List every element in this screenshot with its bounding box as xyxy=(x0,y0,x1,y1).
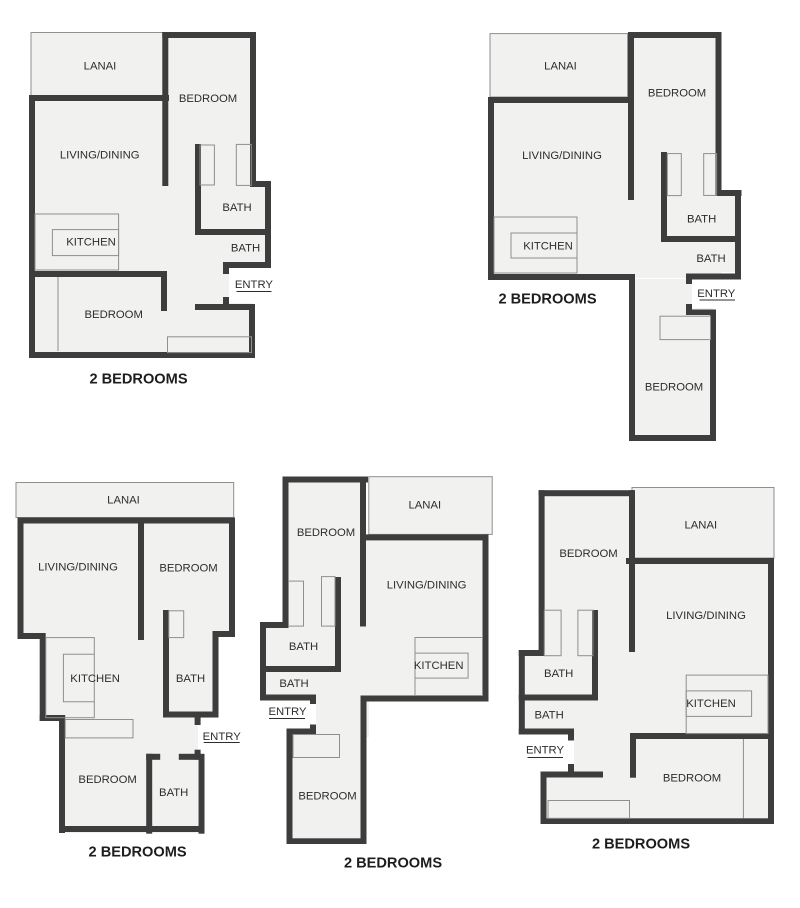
svg-text:BATH: BATH xyxy=(696,253,725,265)
svg-text:2 BEDROOMS: 2 BEDROOMS xyxy=(89,372,187,388)
svg-text:2 BEDROOMS: 2 BEDROOMS xyxy=(592,837,690,853)
svg-text:2 BEDROOMS: 2 BEDROOMS xyxy=(89,844,187,860)
svg-text:BATH: BATH xyxy=(279,678,308,690)
svg-text:2 BEDROOMS: 2 BEDROOMS xyxy=(498,292,596,308)
svg-text:BATH: BATH xyxy=(534,710,563,722)
svg-text:LANAI: LANAI xyxy=(544,61,577,73)
svg-text:LIVING/DINING: LIVING/DINING xyxy=(60,149,140,161)
svg-text:BATH: BATH xyxy=(159,787,188,799)
svg-text:BEDROOM: BEDROOM xyxy=(645,381,703,393)
svg-text:BATH: BATH xyxy=(289,641,318,653)
svg-text:KITCHEN: KITCHEN xyxy=(686,698,736,710)
svg-text:BEDROOM: BEDROOM xyxy=(78,774,136,786)
svg-text:ENTRY: ENTRY xyxy=(526,745,565,757)
svg-text:ENTRY: ENTRY xyxy=(203,731,242,743)
svg-text:BEDROOM: BEDROOM xyxy=(663,773,721,785)
svg-text:BEDROOM: BEDROOM xyxy=(648,88,706,100)
svg-text:KITCHEN: KITCHEN xyxy=(414,660,464,672)
svg-text:BATH: BATH xyxy=(222,202,251,214)
svg-text:BATH: BATH xyxy=(231,242,260,254)
svg-text:BEDROOM: BEDROOM xyxy=(179,93,237,105)
svg-text:BEDROOM: BEDROOM xyxy=(159,563,217,575)
svg-text:LANAI: LANAI xyxy=(684,520,717,532)
svg-text:BEDROOM: BEDROOM xyxy=(298,791,356,803)
svg-text:ENTRY: ENTRY xyxy=(268,706,307,718)
svg-text:BEDROOM: BEDROOM xyxy=(297,527,355,539)
svg-text:LANAI: LANAI xyxy=(107,495,140,507)
svg-text:2 BEDROOMS: 2 BEDROOMS xyxy=(344,856,442,872)
svg-text:LIVING/DINING: LIVING/DINING xyxy=(387,580,467,592)
svg-text:ENTRY: ENTRY xyxy=(697,288,736,300)
svg-text:LIVING/DINING: LIVING/DINING xyxy=(38,562,118,574)
svg-text:ENTRY: ENTRY xyxy=(235,279,274,291)
svg-text:BATH: BATH xyxy=(176,673,205,685)
svg-text:BATH: BATH xyxy=(544,668,573,680)
svg-text:KITCHEN: KITCHEN xyxy=(70,673,120,685)
svg-text:KITCHEN: KITCHEN xyxy=(66,237,116,249)
svg-text:LANAI: LANAI xyxy=(408,500,441,512)
svg-text:LANAI: LANAI xyxy=(84,61,117,73)
svg-text:LIVING/DINING: LIVING/DINING xyxy=(522,150,602,162)
svg-text:BEDROOM: BEDROOM xyxy=(559,548,617,560)
svg-text:BEDROOM: BEDROOM xyxy=(85,309,143,321)
svg-text:LIVING/DINING: LIVING/DINING xyxy=(666,610,746,622)
svg-text:BATH: BATH xyxy=(687,214,716,226)
svg-text:KITCHEN: KITCHEN xyxy=(523,240,573,252)
